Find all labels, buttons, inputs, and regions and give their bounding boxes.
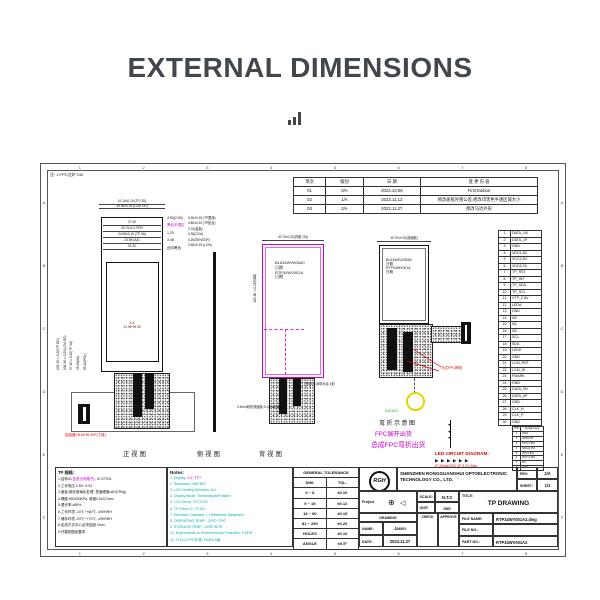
date-label: DATE:	[359, 535, 383, 548]
tolerance-dim: 16 ~ 80	[294, 508, 327, 518]
bend-tail-connector	[461, 322, 471, 344]
title-cell: TITLE: TP DRAWING	[459, 491, 558, 513]
sheet-coordinate: A	[560, 200, 565, 205]
sheet-column-numbers-top: 12345678	[48, 165, 558, 170]
sheet-coordinate: 7	[461, 165, 463, 170]
sheet-coordinate: E	[42, 452, 47, 457]
tolerance-row: 9 ~ 15 ±0.12	[294, 498, 359, 508]
tolerance-header-cell: DIM.	[294, 478, 327, 488]
back-view-dashed-line	[285, 329, 286, 375]
back-view-outline: BL634WV005A0日期RTP34WV001A日期	[262, 244, 324, 378]
bar-chart-icon	[288, 112, 301, 125]
drawing-label: DRAWING	[359, 513, 417, 522]
sheet-coordinate: E	[560, 452, 565, 457]
projection-cone-icon: ◁	[400, 499, 405, 507]
sheet-coordinate: 2	[143, 165, 145, 170]
revision-item: 03	[294, 205, 326, 214]
revision-change: 修改盖板外围公差,修改印黑色半透区域大小	[420, 196, 537, 205]
tolerance-rows: 0 ~ 8 ±0.10 9 ~ 15 ±0.12 16 ~ 80 ±0.15 8…	[294, 488, 359, 549]
part-label: 日期	[275, 275, 305, 280]
tolerance-row: 0 ~ 8 ±0.10	[294, 488, 359, 498]
title-label: TITLE:	[462, 494, 473, 498]
revision-row: 01 0/A 2023.10.09 First Edition	[294, 187, 538, 196]
bend-fpc-stiffener	[387, 328, 397, 370]
tolerance-dim: HOLES	[294, 529, 327, 539]
interface-pin-table: 1 DATA_1N 2 DATA_1P 3 GND 4 VDD1.8V	[498, 230, 542, 426]
revision-header-cell: 日 期	[363, 178, 420, 187]
tolerance-header-row: DIM.TOL.	[294, 478, 359, 488]
tp-note-line: 4.硬度:650±50KPa, 厚度2.5±0.2mm	[58, 497, 164, 501]
tp-note-text: , IC:GT911	[95, 477, 112, 481]
unit-value: mm	[435, 502, 459, 513]
note-line: 9. STORAGE TEMP: -30℃~80℃	[170, 525, 290, 529]
project-label: Project	[362, 500, 374, 504]
tolerance-value: ±0.12	[326, 498, 358, 508]
tolerance-value: ±0.5°	[326, 539, 358, 549]
revision-header-cell: 项次	[294, 178, 326, 187]
bend-view-outline: BL634WV005A0日期RTP34WV001A日期	[379, 245, 429, 324]
front-view-caption: 正视图	[123, 449, 148, 458]
dimension-label: 26.70±0.2 PER	[103, 227, 161, 232]
tp-note-line: 2.工作电压:2.8V~3.3V	[58, 484, 164, 488]
sheet-coordinate: 3	[206, 551, 208, 556]
front-fpc-stiffener	[145, 373, 154, 409]
page-title: EXTERNAL DIMENSIONS	[0, 52, 600, 84]
tp-note-highlight: (信息见规格书)	[71, 477, 94, 481]
motor-fpc-label: 马达FPC焊线	[441, 366, 462, 370]
dimension-label: 0.35(OCA)	[188, 233, 268, 237]
dimension-label: 4.80±0.10 (TP贴合)	[188, 222, 268, 226]
sheet-coordinate: F	[560, 515, 565, 520]
active-area-text: 23.98*95.98	[107, 325, 158, 329]
back-fpc-stiffener	[293, 378, 301, 406]
date-value: 2023.11.27	[383, 535, 417, 548]
front-fpc-area	[114, 373, 170, 429]
tolerance-dim: 81 ~ 250	[294, 518, 327, 528]
company-logo: RGH	[369, 471, 390, 492]
fold-green-dimension: 6.10±0.5	[385, 410, 397, 414]
tp-note-line: 5.透光率:≥85%	[58, 503, 164, 507]
led-diode-icon: ▶	[453, 458, 456, 464]
sheet-coordinate: D	[560, 389, 565, 394]
revision-date: 2023.10.09	[363, 187, 420, 196]
revision-change: 修改马达外形	[420, 205, 537, 214]
dimension-label-vertical: 106.96±0.25(LCM OD)	[64, 230, 68, 370]
bend-fpc-tail	[431, 326, 463, 343]
sheet-coordinate: 8	[525, 551, 527, 556]
tolerance-dim: ANGLE	[294, 539, 327, 549]
back-view-dashed-line	[264, 329, 304, 330]
side-view-stack-dimensions: 5.30±0.15 (TP整体)4.80±0.10 (TP贴合)0.70(盖板)…	[188, 217, 268, 250]
note-line: 5. LCD Driver: ST7701S	[170, 500, 290, 504]
sheet-coordinate: B	[560, 263, 565, 268]
revision-rows: 01 0/A 2023.10.09 First Edition 02 1/A 2…	[294, 187, 538, 214]
front-fpc-stiffener	[133, 373, 142, 417]
sheet-value: 1/1	[537, 479, 558, 491]
tolerance-value: ±0.15	[326, 508, 358, 518]
projection-circle-icon: ⊕	[388, 498, 395, 507]
note-line: 6. TP Driver IC: GT911	[170, 507, 290, 511]
tesa-note: TESA 0.05防水区 4处	[304, 383, 346, 387]
tp-notes-box: TP 规格: 1.结构IC(信息见规格书), IC:GT911 2.工作电压:2…	[55, 467, 167, 547]
tolerance-header-cell: TOL.	[326, 478, 358, 488]
tolerance-row: ANGLE ±0.5°	[294, 539, 359, 549]
led-diode-icon: ▶	[441, 458, 444, 464]
adhesive-note: 0.3mm耐折双面胶-0.1(3M双面胶)	[237, 406, 284, 410]
revision-version: 0/A	[326, 187, 364, 196]
bar-chart-bar	[293, 117, 296, 125]
sheet-coordinate: 6	[398, 165, 400, 170]
led-diode-icon: ▶	[459, 458, 462, 464]
sheet-coordinate: F	[42, 515, 47, 520]
led-diode-icon: ▶	[465, 458, 468, 464]
front-view-top-dimensions: 41.10±0.10 (TP OD)39.96±0.25 (LCM OD)	[99, 200, 165, 209]
sheet-coordinate: 5	[334, 551, 336, 556]
active-area-labels: A.A23.98*95.98	[107, 321, 158, 329]
revision-header-cell: 版别	[326, 178, 364, 187]
led-diode-icon: ▶	[447, 458, 450, 464]
dimension-label-vertical: 97.10±0.15(TP VA)	[70, 230, 74, 370]
tolerance-row: 16 ~ 80 ±0.15	[294, 508, 359, 518]
revision-date: 2023.11.13	[363, 196, 420, 205]
sheet-coordinate: 1	[79, 551, 81, 556]
tolerance-table: GENERAL TOLERANCE DIM.TOL. 0 ~ 8 ±0.10 9…	[293, 467, 359, 550]
front-callout: 丝印黑色	[167, 246, 185, 250]
file-name-label: FILE NAME:	[459, 513, 493, 524]
sheet-coordinate: 2	[143, 551, 145, 556]
note-line: 4. Display Mode: Transmissive/Positive	[170, 494, 290, 498]
sheet-coordinate: A	[42, 200, 47, 205]
connector-slot	[465, 325, 468, 341]
led-pin-header-row: PINAssignment	[513, 427, 544, 432]
revision-date: 2023.11.27	[363, 205, 420, 214]
unit-label: UNIT:	[417, 502, 435, 513]
sheet-label: SHEET:	[517, 479, 537, 491]
company-name: SHENZHEN RONGGUANGHUI OPTOELECTRONIC TEC…	[397, 467, 517, 491]
drawing-title: TP DRAWING	[460, 500, 557, 507]
tolerance-dim: 0 ~ 8	[294, 488, 327, 498]
sheet-coordinate: 7	[461, 551, 463, 556]
revision-item: 02	[294, 196, 326, 205]
scale-label: SCALE:	[417, 491, 435, 502]
connector-note: 连接器:0510HS-30P(下接)	[65, 433, 106, 437]
drawing-sheet: 12345678 12345678 ABCDEF ABCDEF 注: 1.FPC…	[40, 163, 566, 557]
tolerance-row: HOLES ±0.10	[294, 529, 359, 539]
led-diode-icon: ▼	[448, 435, 451, 442]
check-label: CHECK	[418, 515, 437, 519]
led-circuit-row: ▶▶▶▶▶▶	[435, 458, 468, 464]
sheet-coordinate: 1	[79, 165, 81, 170]
sheet-coordinate: C	[560, 326, 565, 331]
dimension-label: 24.59±0.15 (TP VA)	[103, 233, 161, 238]
notes-title: Notes:	[170, 470, 290, 475]
check-cell: CHECK	[417, 513, 438, 547]
note-text: 1. Display:	[170, 476, 187, 480]
front-callout: 4.90(2.80)	[167, 216, 185, 220]
file-no-label: FILE NO.:	[459, 524, 493, 535]
part-label: 日期	[386, 270, 412, 274]
front-view-bezel-dimensions: 27.3026.70±0.2 PER24.59±0.15 (TP VA)23.9…	[103, 221, 161, 251]
revision-version: 1/A	[326, 196, 364, 205]
back-view-caption: 背视图	[259, 449, 284, 458]
revision-table: 项次版别日 期变 更 内 容 01 0/A 2023.10.09 First E…	[293, 177, 538, 214]
led-pin-table: PINAssignment 1 GND 2 VDD2.8V 3 SCL(1.8V…	[512, 426, 544, 471]
dimension-label: 23.98 (AA)	[103, 239, 161, 244]
tolerance-value: ±0.10	[326, 529, 358, 539]
pin-signal: GND	[511, 419, 542, 426]
tp-note-lines: 2.工作电压:2.8V~3.3V3.盖板:钢化玻璃化处理, 表面硬度≥6H(75…	[58, 484, 164, 534]
tolerance-row: 81 ~ 250 ±0.20	[294, 518, 359, 528]
tolerance-value: ±0.20	[326, 518, 358, 528]
sheet-note: 注: 1.FPC过炉 240	[50, 173, 83, 178]
fpc-ship-note-2: 总成FPC弯折出货	[371, 439, 425, 449]
sheet-coordinate: 4	[270, 551, 272, 556]
bend-view-caption: 弯折示意图	[379, 418, 417, 427]
revision-item: 01	[294, 187, 326, 196]
tolerance-dim: 9 ~ 15	[294, 498, 327, 508]
tolerance-title: GENERAL TOLERANCE	[294, 468, 359, 478]
front-view-active-area: A.A23.98*95.98	[106, 262, 159, 362]
sheet-row-letters-right: ABCDEF	[560, 171, 565, 549]
sheet-coordinate: C	[42, 326, 47, 331]
tp-note-line: 6.工作环境:-10℃~+60℃, ≤90%RH	[58, 510, 164, 514]
note-line-1: 1. Display: 3.4', TFT	[170, 476, 290, 480]
led-chain-diodes: ▼ ▼ ▼	[448, 422, 451, 442]
revision-row: 02 1/A 2023.11.13 修改盖板外围公差,修改印黑色半透区域大小	[294, 196, 538, 205]
tp-notes-title: TP 规格:	[58, 470, 164, 476]
approve-label: APPROVE	[439, 515, 458, 519]
led-diode-icon: ▼	[448, 422, 451, 429]
pin-rows: 1 DATA_1N 2 DATA_1P 3 GND 4 VDD1.8V	[499, 231, 542, 426]
revision-header-row: 项次版别日 期变 更 内 容	[294, 178, 538, 187]
sheet-row-letters-left: ABCDEF	[42, 171, 47, 549]
side-view-profile	[213, 252, 217, 432]
file-name-value: RTP34WV001A2.dwg	[493, 513, 558, 524]
projection-cell: Project ⊕ ◁	[359, 491, 417, 513]
front-callout: 3.46	[167, 238, 185, 242]
dimension-label: 39.96±0.25 (LCM OD)	[99, 205, 165, 210]
sheet-coordinate: B	[42, 263, 47, 268]
red-leader-lines	[399, 347, 445, 373]
dimension-label: 0.70(盖板)	[188, 228, 268, 232]
revision-row: 03 2/A 2023.11.27 修改马达外形	[294, 205, 538, 214]
tp-note-line: 3.盖板:钢化玻璃化处理, 表面硬度≥6H(750g)	[58, 490, 164, 494]
front-callout: 黑色半透区	[167, 223, 185, 227]
logo-cell: RGH	[359, 467, 397, 491]
dimension-label: 0.20(SENSOR)	[188, 239, 268, 243]
bar-chart-bar	[288, 120, 291, 125]
sheet-coordinate: 6	[398, 551, 400, 556]
name-value: Jason	[383, 522, 417, 535]
sheet-coordinate: 4	[270, 165, 272, 170]
scale-value: N.T.S	[435, 491, 459, 502]
sheet-coordinate: 3	[206, 165, 208, 170]
tp-note-line: 7.储存环境:-20℃~+70℃, ≤90%RH	[58, 517, 164, 521]
front-callout-list: 4.90(2.80)黑色半透区1.203.46丝印黑色	[167, 216, 185, 253]
pin-number: 30	[499, 419, 511, 426]
bar-chart-bar	[298, 112, 301, 125]
connector-slot	[83, 407, 86, 421]
side-view-caption: 侧视图	[197, 449, 222, 458]
dimension-label: 27.30	[103, 221, 161, 226]
fpc-ship-note-1: FPC展开出货	[375, 429, 412, 438]
revision-version: 2/A	[326, 205, 364, 214]
led-diode-icon: ▶	[435, 458, 438, 464]
rev-value: 2/A	[537, 467, 558, 479]
dimension-label: 31.30	[103, 245, 161, 250]
note-line: 2. Resolution: 480*800	[170, 482, 290, 486]
part-no-value: RTP34WV001A2	[493, 536, 558, 547]
fold-highlight-circle	[406, 392, 425, 411]
dimension-label-vertical: 95.98(AA)	[77, 230, 81, 370]
approve-cell: APPROVE	[438, 513, 459, 547]
revision-header-cell: 变 更 内 容	[420, 178, 537, 187]
led-circuit-title: LED CIRCUIT DIAGRAM:	[435, 451, 489, 456]
note-line: 8. OPERATING TEMP: -20℃~70℃	[170, 519, 290, 523]
tp-note-line: 8.走线方式中心必须加固 2mm	[58, 523, 164, 527]
tp-note-line-1: 1.结构IC(信息见规格书), IC:GT911	[58, 477, 164, 481]
revision-change: First Edition	[420, 187, 537, 196]
file-no-value	[493, 524, 558, 535]
title-block: RGH SHENZHEN RONGGUANGHUI OPTOELECTRONIC…	[359, 467, 558, 547]
note-line: 3. LCD Viewing Direction: ALL	[170, 488, 290, 492]
dimension-label: 2.65±0.15 (LCM)	[188, 244, 268, 248]
bend-view-part-labels: BL634WV005A0日期RTP34WV001A日期	[386, 258, 412, 274]
tp-note-line: 9.开模按图纸要求	[58, 530, 164, 534]
notes-box: Notes: 1. Display: 3.4', TFT 2. Resoluti…	[167, 467, 293, 547]
led-diode-icon: ▼	[448, 429, 451, 436]
sheet-coordinate: 5	[334, 165, 336, 170]
sheet-coordinate: D	[42, 389, 47, 394]
dimension-label-vertical: 109.13±0.20(TP OD)	[57, 230, 61, 370]
note-lines: 2. Resolution: 480*8003. LCD Viewing Dir…	[170, 482, 290, 542]
front-connector	[78, 404, 90, 424]
note-line: 11. 0714-2 FPC补强 / RoHS A级	[170, 538, 290, 542]
name-label: NAME:	[359, 522, 383, 535]
part-no-label: PART NO.:	[459, 536, 493, 547]
front-view-left-dimensions: 109.13±0.20(TP OD)106.96±0.25(LCM OD)97.…	[57, 230, 87, 370]
back-view-part-labels: BL634WV005A0日期RTP34WV001A日期	[275, 261, 305, 280]
bend-view-top-dimension: 40.70±0.20(双面胶)	[377, 237, 431, 242]
tolerance-value: ±0.10	[326, 488, 358, 498]
back-view-top-dimension: 40.70±0.20(背胶 OD)	[262, 236, 324, 241]
front-callout: 1.20	[167, 231, 185, 235]
tolerance-title-row: GENERAL TOLERANCE	[294, 468, 359, 478]
dimension-label-vertical: 85.10(POL)	[84, 230, 88, 370]
sheet-column-numbers-bottom: 12345678	[48, 551, 558, 556]
note-line: 7. Electrical Character: ( ) Reference D…	[170, 513, 290, 517]
rev-label: REV:	[517, 467, 537, 479]
sheet-coordinate: 8	[525, 165, 527, 170]
note-line: 10. Experiments on Environmental Protect…	[170, 531, 290, 535]
back-view-left-dimension: 105.80±0.25(背胶)	[254, 274, 258, 302]
tp-note-text: 1.结构IC	[58, 477, 71, 481]
led-pin-rows: 1 GND 2 VDD2.8V 3 SCL(1.8V) 4 SDA(1.8V)	[513, 431, 544, 470]
note-highlight: 3.4', TFT	[187, 476, 201, 480]
pin-row: 30 GND	[499, 419, 542, 426]
